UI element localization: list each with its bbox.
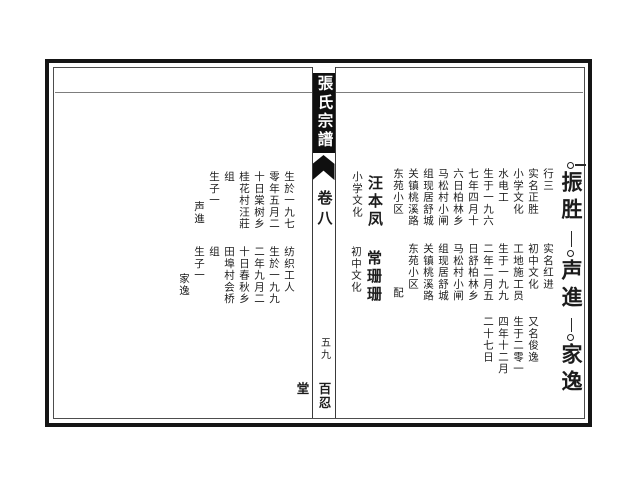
spouse-name: 常珊珊 xyxy=(362,243,383,304)
bio-band-person2: 实名红进 初中文化 工地施工员 生于一九九 二年二月五 日舒柏林乡 马松村小闸 … xyxy=(348,243,555,311)
chain-name-person2: 声進 xyxy=(558,259,584,313)
spine-title-block: 張氏宗譜 xyxy=(313,73,335,153)
bio-column: 桂花村汪莊 xyxy=(236,171,251,230)
bio-column: 二年九月二 xyxy=(251,246,266,305)
hall-name: 百忍堂 xyxy=(313,382,335,418)
bio-column: 实名正胜 xyxy=(525,168,540,215)
lineage-node-circle xyxy=(567,334,574,341)
chain-connector-line xyxy=(571,231,572,247)
bio-column: 组现居舒城 xyxy=(420,168,435,227)
bio-column: 行三 xyxy=(540,168,555,191)
bio-column: 六日柏林乡 xyxy=(450,168,465,227)
bio-band-person1: 行三 实名正胜 小学文化 水电工 生于一九六 七年四月十 六日柏林乡 马松村小闸… xyxy=(349,168,555,236)
bio-column: 日舒柏林乡 xyxy=(465,243,480,302)
bio-column: 纺织工人 xyxy=(281,246,296,293)
bio-column: 初中文化 xyxy=(525,243,540,290)
bio-column: 组现居舒城 xyxy=(435,243,450,302)
page-number: 五九 xyxy=(313,337,335,361)
spouse-note: 小学文化 xyxy=(349,168,363,218)
genealogy-page: 張氏宗譜 卷八 五九 百忍堂 振胜 声進 家逸 行三 实名正胜 小学文化 水电工… xyxy=(0,0,640,480)
chain-entry-connector-line xyxy=(575,164,586,165)
bio-column: 实名红进 xyxy=(540,243,555,290)
spouse-bio-band-1: 生於一九七 零年五月二 十日棠树乡 桂花村汪莊 组 生子一 声進 xyxy=(191,171,296,231)
volume-label: 卷八 xyxy=(313,190,335,230)
bio-column: 组 xyxy=(206,246,221,258)
bio-column: 四年十二月 xyxy=(495,316,510,375)
child-name: 声進 xyxy=(191,171,206,224)
book-spine: 張氏宗譜 卷八 五九 百忍堂 xyxy=(312,67,336,418)
chain-name-person1: 振胜 xyxy=(558,171,584,225)
bio-band-person3: 又名俊逸 生于二零一 四年十二月 二十七日 xyxy=(480,316,540,378)
spouse-marker: 配 xyxy=(390,243,405,299)
spouse-note: 初中文化 xyxy=(348,243,362,293)
child-name: 家逸 xyxy=(176,246,191,296)
bio-column: 马松村小闸 xyxy=(435,168,450,227)
chain-connector-line xyxy=(571,318,572,332)
bio-column: 生於一九九 xyxy=(266,246,281,305)
lineage-node-circle xyxy=(567,250,574,257)
bio-column: 小学文化 xyxy=(510,168,525,215)
bio-column: 十日棠树乡 xyxy=(251,171,266,230)
spouse-name: 汪本凤 xyxy=(363,168,384,229)
bio-column: 水电工 xyxy=(495,168,510,203)
spouse-bio-band-2: 纺织工人 生於一九九 二年九月二 十日春秋乡 田埠村会桥 组 生子一 家逸 xyxy=(176,246,296,306)
book-title: 張氏宗譜 xyxy=(313,75,335,153)
bio-column: 生于一九六 xyxy=(480,168,495,227)
bio-column: 生于二零一 xyxy=(510,316,525,375)
lineage-node-circle xyxy=(567,162,574,169)
bio-column: 零年五月二 xyxy=(266,171,281,230)
chain-name-person3: 家逸 xyxy=(558,343,584,397)
bio-column: 组 xyxy=(221,171,236,183)
children-label: 生子一 xyxy=(191,246,206,281)
bio-column: 田埠村会桥 xyxy=(221,246,236,305)
fishtail-mark-icon xyxy=(313,155,335,189)
bio-column: 又名俊逸 xyxy=(525,316,540,363)
bio-column: 二年二月五 xyxy=(480,243,495,302)
bio-column: 十日春秋乡 xyxy=(236,246,251,305)
bio-column: 东苑小区 xyxy=(405,243,420,290)
bio-column: 关镇桃溪路 xyxy=(405,168,420,227)
bio-column: 工地施工员 xyxy=(510,243,525,302)
bio-column: 东苑小区 xyxy=(390,168,405,215)
bio-column: 七年四月十 xyxy=(465,168,480,227)
bio-column: 生于一九九 xyxy=(495,243,510,302)
bio-column: 马松村小闸 xyxy=(450,243,465,302)
bio-column: 二十七日 xyxy=(480,316,495,363)
children-label: 生子一 xyxy=(206,171,221,206)
bio-column: 关镇桃溪路 xyxy=(420,243,435,302)
bio-column: 生於一九七 xyxy=(281,171,296,230)
